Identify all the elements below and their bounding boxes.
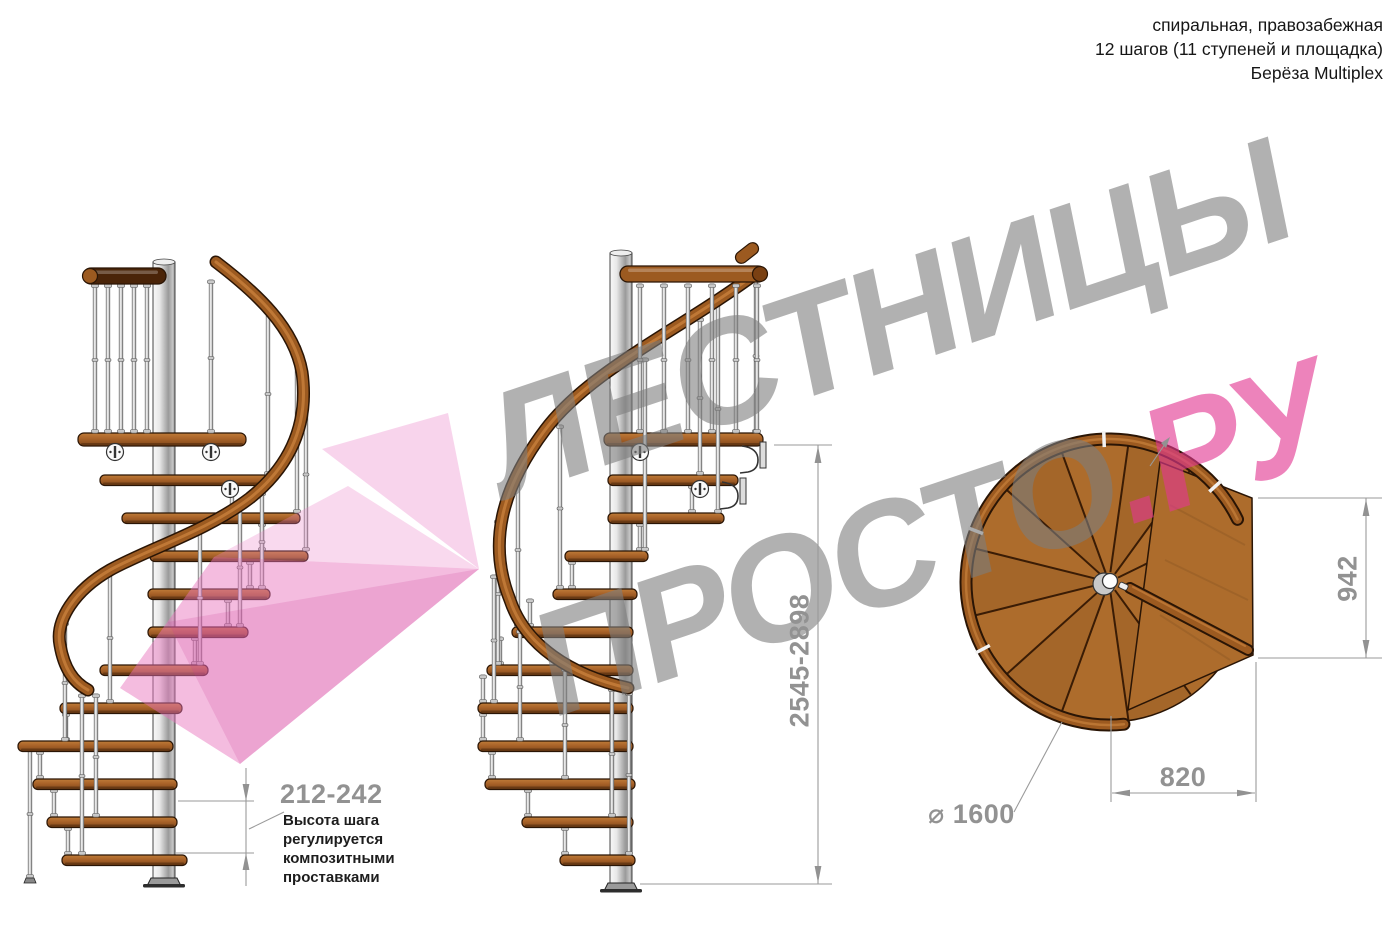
staircase-drawing-canvas: ЛЕСТНИЦЫ ПРОСТО.РУ [0, 0, 1400, 947]
dimension-landing-width: 820 [1133, 762, 1233, 793]
dimension-landing-depth: 942 [1333, 544, 1364, 614]
title-line-steps: 12 шагов (11 ступеней и площадка) [1095, 37, 1383, 61]
title-line-material: Берёза Multiplex [1095, 61, 1383, 85]
dimension-total-height: 2545-2898 [785, 581, 816, 741]
title-line-type: спиральная, правозабежная [1095, 13, 1383, 37]
dimension-diameter: ⌀ 1600 [928, 799, 1015, 830]
drawing-title-block: спиральная, правозабежная 12 шагов (11 с… [1095, 13, 1383, 85]
step-height-note: Высота шага регулируется композитными пр… [283, 811, 419, 887]
dimension-lines [0, 0, 1400, 947]
dimension-step-height: 212-242 [280, 779, 383, 810]
